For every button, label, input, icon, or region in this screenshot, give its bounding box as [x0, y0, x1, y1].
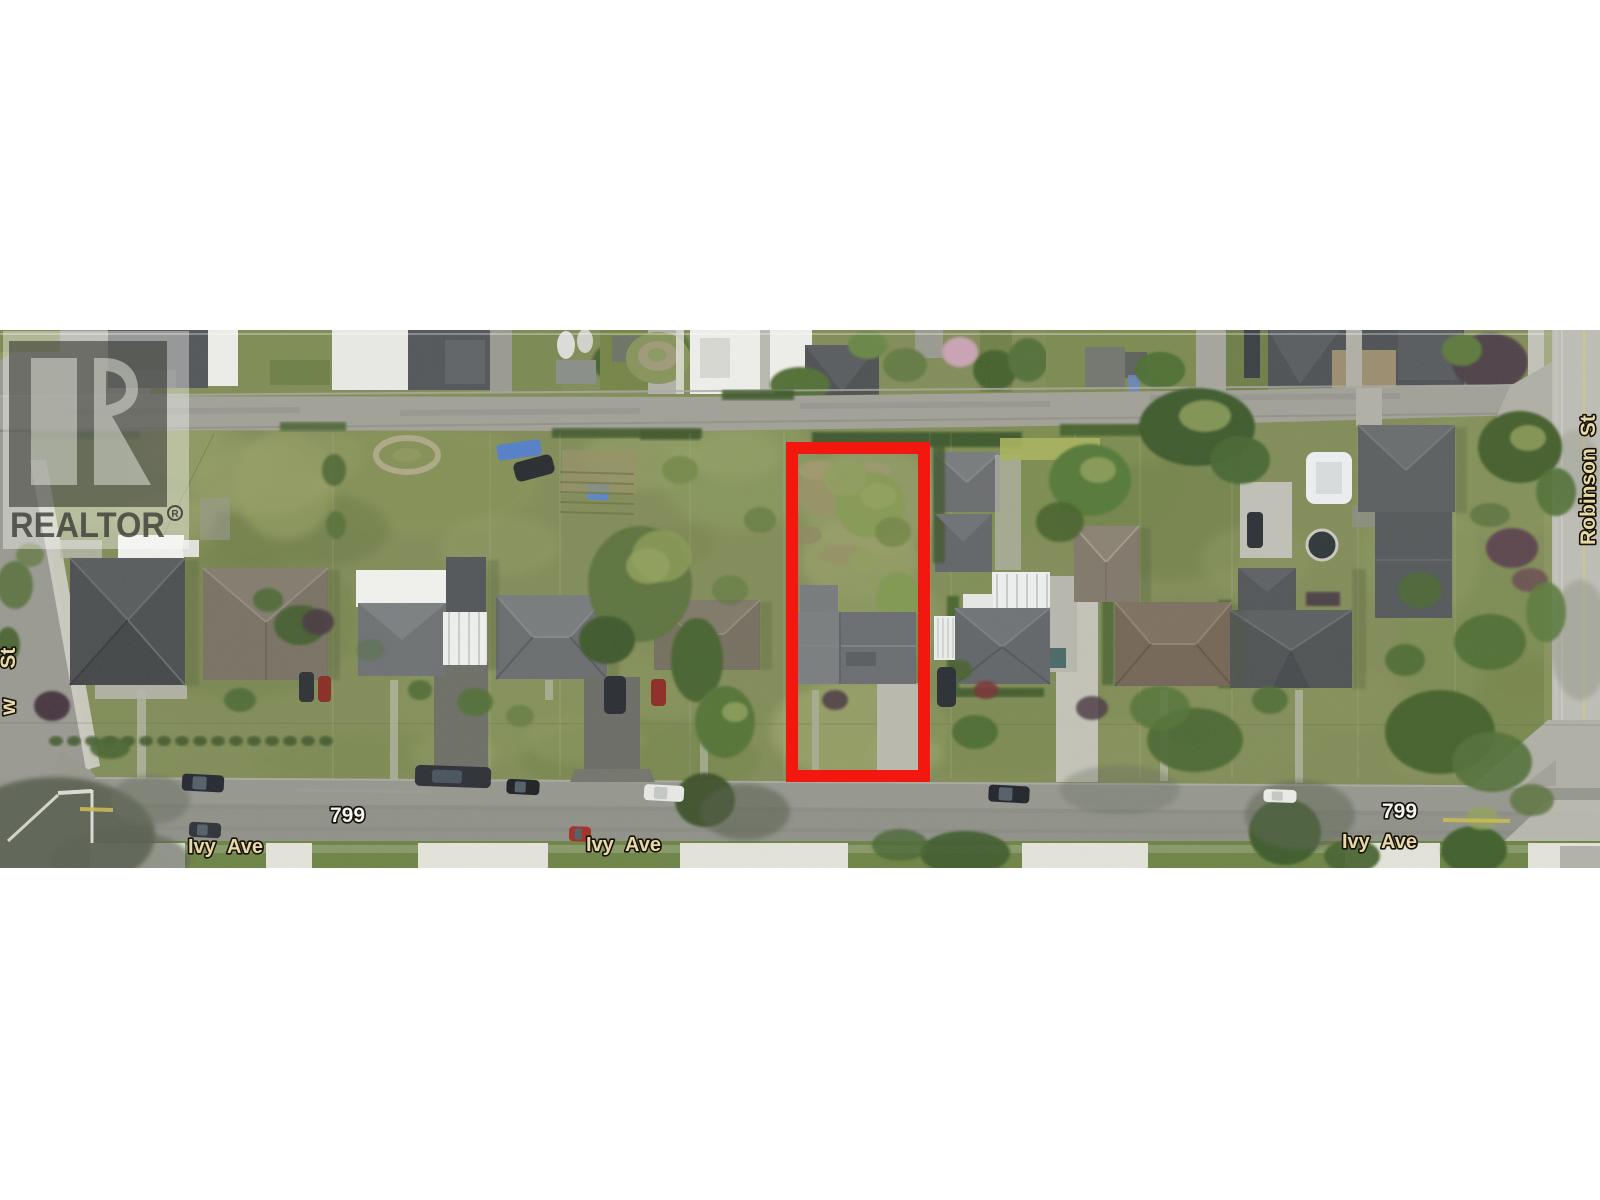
svg-text:RobinsonSt: RobinsonSt — [1577, 415, 1600, 545]
svg-text:REALTOR: REALTOR — [10, 506, 165, 545]
svg-text:R: R — [171, 509, 179, 520]
svg-text:799: 799 — [330, 804, 365, 827]
svg-text:799: 799 — [1382, 800, 1417, 823]
